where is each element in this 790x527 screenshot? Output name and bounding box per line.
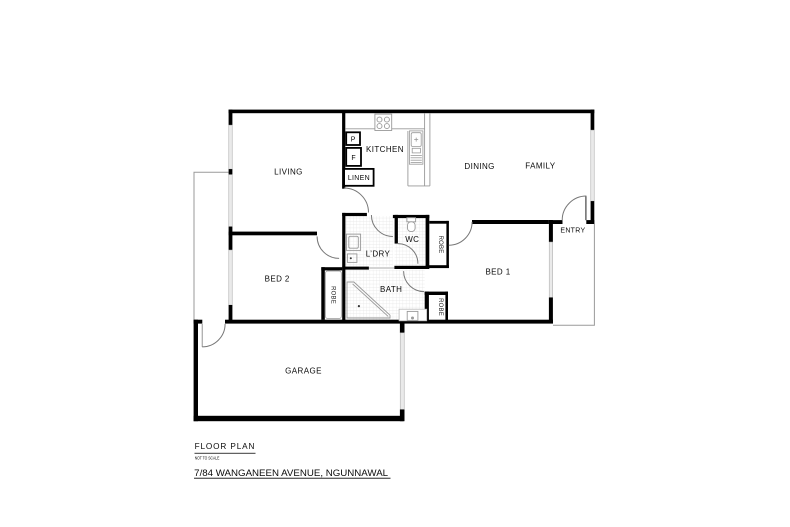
svg-text:ROBE: ROBE — [330, 286, 336, 304]
svg-text:NOT TO SCALE: NOT TO SCALE — [195, 456, 220, 461]
svg-text:F: F — [351, 155, 356, 162]
svg-text:WC: WC — [405, 235, 419, 244]
svg-text:L’DRY: L’DRY — [366, 250, 391, 259]
svg-text:KITCHEN: KITCHEN — [366, 145, 404, 154]
svg-text:GARAGE: GARAGE — [285, 367, 322, 376]
svg-text:7/84 WANGANEEN AVENUE, NGUNNAW: 7/84 WANGANEEN AVENUE, NGUNNAWAL — [194, 468, 389, 479]
svg-text:LIVING: LIVING — [274, 167, 303, 176]
svg-text:FAMILY: FAMILY — [525, 162, 556, 171]
svg-text:ENTRY: ENTRY — [560, 227, 585, 234]
svg-text:BATH: BATH — [380, 285, 402, 294]
svg-text:P: P — [351, 136, 356, 143]
svg-text:FLOOR PLAN: FLOOR PLAN — [195, 442, 255, 451]
svg-text:LINEN: LINEN — [348, 175, 370, 182]
svg-text:BED 2: BED 2 — [265, 274, 290, 283]
svg-text:ROBE: ROBE — [437, 236, 443, 254]
svg-text:DINING: DINING — [464, 162, 494, 171]
svg-text:BED 1: BED 1 — [485, 268, 510, 277]
svg-text:ROBE: ROBE — [437, 298, 443, 316]
